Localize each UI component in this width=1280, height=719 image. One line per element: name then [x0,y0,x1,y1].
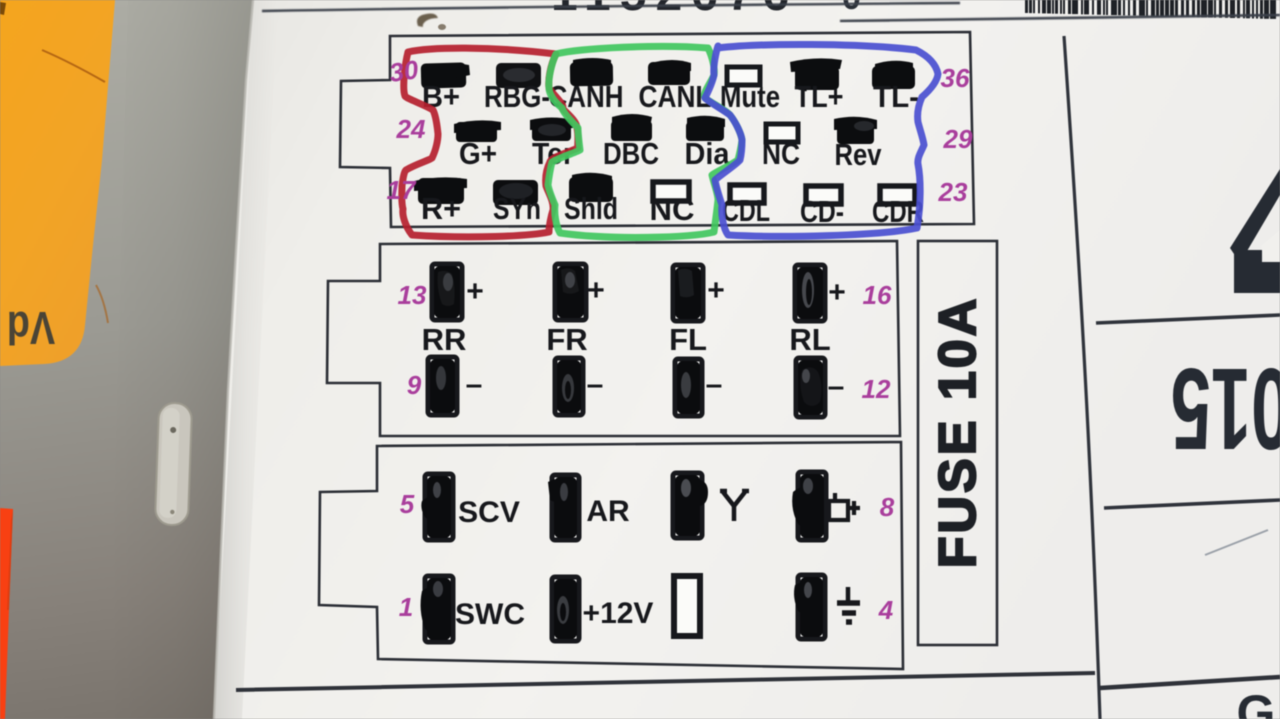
svg-text:+: + [828,276,846,309]
svg-text:9015: 9015 [1171,344,1280,473]
svg-text:36: 36 [941,63,970,93]
svg-text:NC: NC [762,136,800,171]
svg-text:8: 8 [880,492,895,522]
svg-text:16: 16 [863,280,892,310]
svg-text:RL: RL [789,322,830,357]
svg-text:RBG-: RBG- [484,79,550,114]
svg-text:30: 30 [387,54,420,88]
svg-text:CDL: CDL [722,193,770,228]
svg-text:SWC: SWC [455,598,525,631]
svg-text:NC: NC [650,192,695,227]
svg-text:–: – [466,368,483,401]
svg-text:G+: G+ [459,136,497,171]
svg-text:23: 23 [938,177,968,207]
svg-text:–: – [587,368,604,401]
svg-text:9: 9 [407,370,422,400]
svg-text:29: 29 [943,124,973,154]
svg-text:CD-: CD- [800,194,844,229]
svg-text:+12V: +12V [583,597,654,630]
svg-text:0: 0 [842,0,861,17]
svg-text:17: 17 [387,175,417,205]
svg-text:CANL: CANL [639,79,712,114]
svg-text:Vd: Vd [7,302,55,353]
svg-text:FUSE 10A: FUSE 10A [929,296,987,569]
svg-text:–: – [706,368,723,401]
svg-text:Mute: Mute [720,79,780,114]
svg-text:1152676: 1152676 [551,0,798,21]
svg-text:FL: FL [669,322,707,357]
svg-text:DBC: DBC [603,136,659,171]
svg-text:1: 1 [399,592,413,622]
svg-text:–: – [828,370,845,403]
svg-text:SCV: SCV [458,496,520,529]
svg-text:12: 12 [862,374,891,404]
svg-text:RR: RR [422,322,467,357]
svg-text:+: + [707,274,725,307]
svg-text:+: + [466,275,484,308]
svg-text:24: 24 [396,114,426,144]
svg-text:AR: AR [586,495,630,528]
svg-text:+: + [587,274,605,307]
svg-text:SYn: SYn [493,191,541,226]
svg-text:13: 13 [398,280,427,310]
svg-text:G: G [1237,685,1276,719]
svg-text:TL+: TL+ [795,79,844,114]
svg-text:4: 4 [878,595,894,625]
svg-text:R+: R+ [421,191,461,226]
svg-text:Rev: Rev [835,137,883,172]
svg-text:Shld: Shld [564,191,618,226]
svg-text:FR: FR [546,322,587,357]
svg-text:5: 5 [400,489,415,519]
svg-text:TL-: TL- [873,79,919,114]
